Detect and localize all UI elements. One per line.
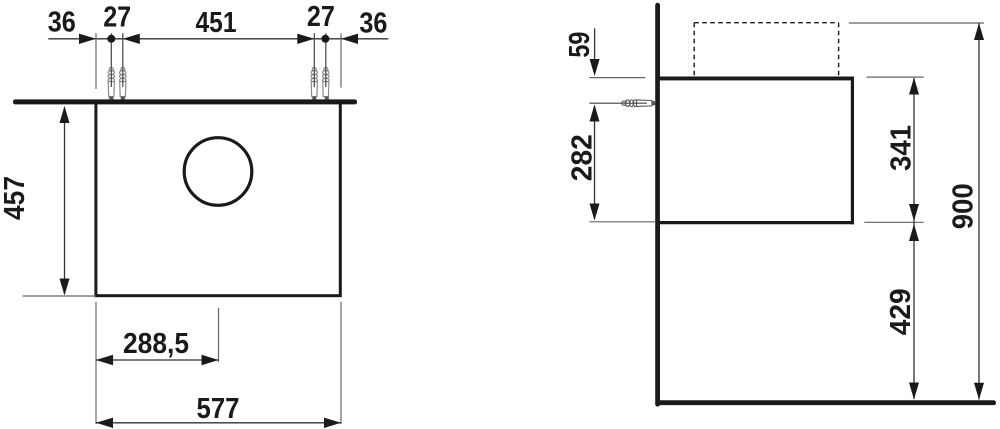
svg-text:36: 36 [48, 7, 76, 39]
svg-text:341: 341 [886, 125, 918, 171]
svg-text:36: 36 [359, 8, 387, 40]
svg-text:457: 457 [0, 176, 31, 220]
svg-text:451: 451 [196, 7, 237, 39]
svg-text:900: 900 [948, 183, 980, 229]
svg-text:282: 282 [567, 134, 599, 181]
svg-text:27: 27 [103, 2, 131, 34]
svg-text:27: 27 [307, 1, 335, 33]
svg-text:288,5: 288,5 [123, 328, 189, 360]
svg-text:577: 577 [197, 393, 240, 425]
svg-text:429: 429 [885, 288, 917, 335]
svg-text:59: 59 [564, 32, 596, 58]
